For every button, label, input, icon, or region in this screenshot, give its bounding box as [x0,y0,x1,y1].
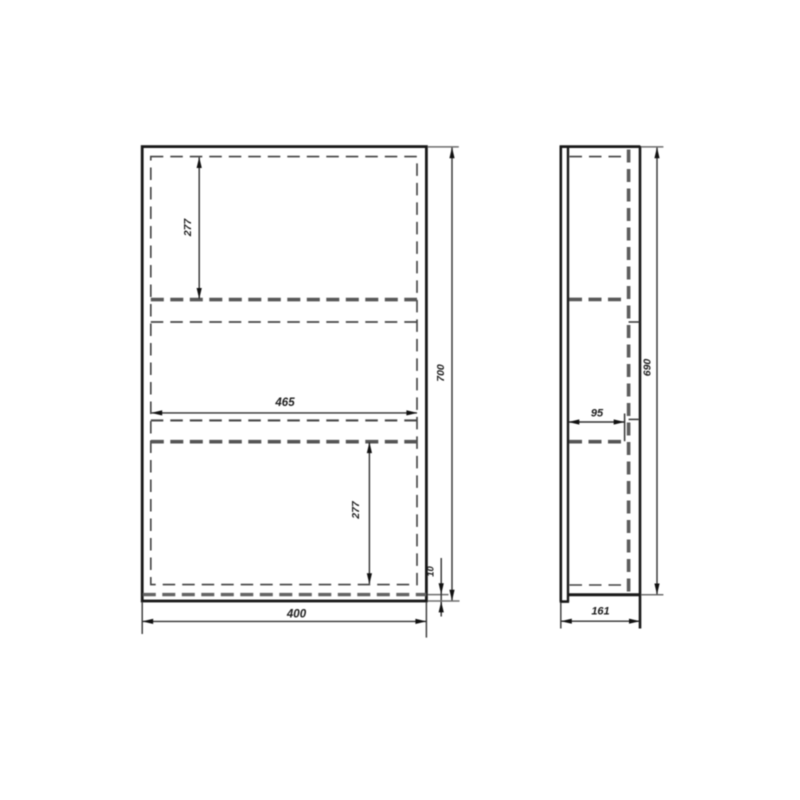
svg-text:277: 277 [182,218,194,238]
svg-text:690: 690 [642,359,654,377]
svg-text:700: 700 [435,364,447,382]
svg-text:10: 10 [426,566,437,577]
svg-text:95: 95 [591,408,604,420]
svg-text:400: 400 [286,609,307,621]
svg-text:465: 465 [274,397,295,409]
svg-text:277: 277 [350,500,362,520]
svg-text:161: 161 [591,606,609,618]
